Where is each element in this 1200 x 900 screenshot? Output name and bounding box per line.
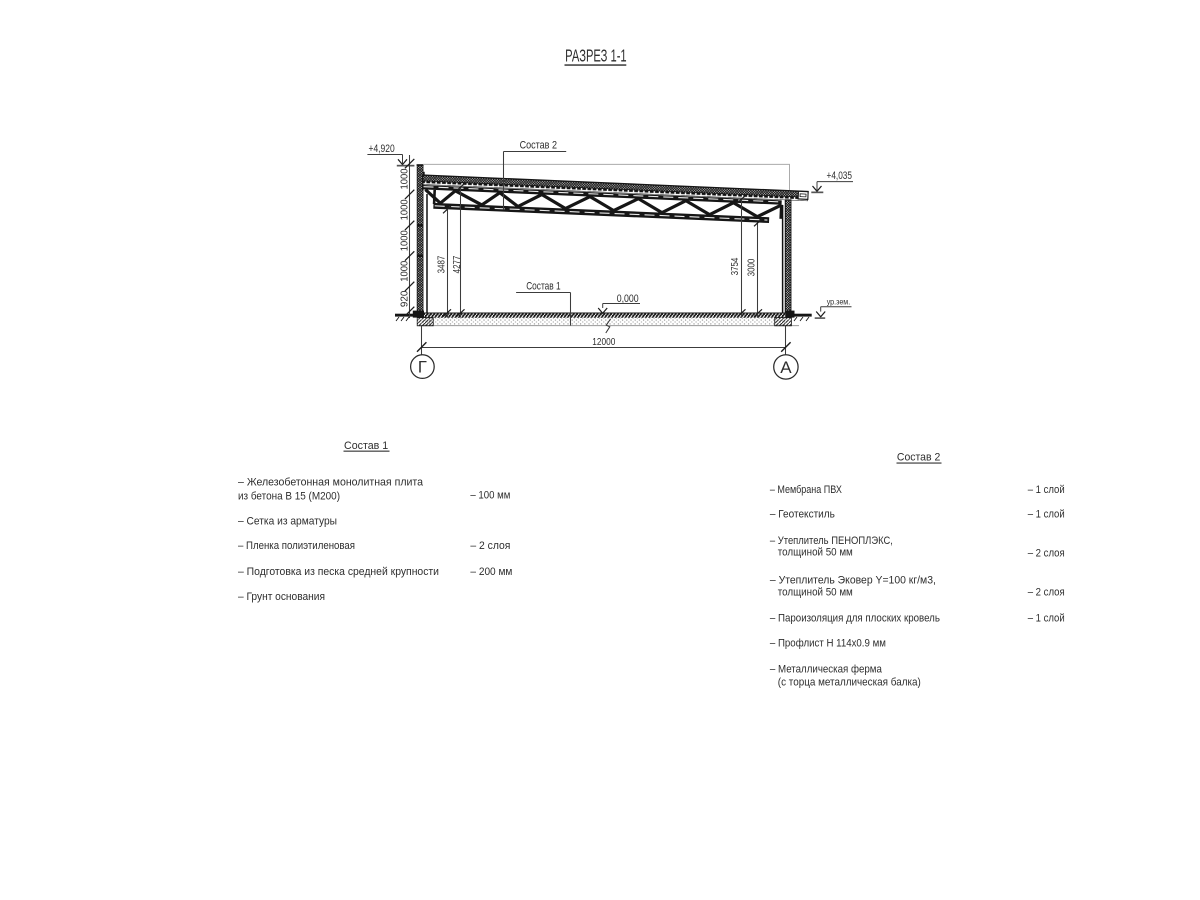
svg-text:+4,035: +4,035 [827, 170, 853, 182]
svg-text:– Железобетонная монолитная: – Железобетонная монолитная плита [238, 477, 424, 489]
svg-text:толщиной 50 мм: толщиной 50 мм [778, 586, 853, 598]
svg-text:– 200 мм: – 200 мм [470, 566, 512, 578]
svg-text:– Профлист Н 114х0.9 мм: – Профлист Н 114х0.9 мм [770, 637, 886, 649]
svg-text:толщиной 50 мм: толщиной 50 мм [778, 547, 853, 559]
svg-text:3487: 3487 [435, 256, 447, 274]
svg-text:1000: 1000 [398, 230, 410, 251]
svg-text:1000: 1000 [398, 261, 410, 282]
svg-text:– 2 слоя: – 2 слоя [1028, 586, 1065, 598]
svg-text:12000: 12000 [592, 336, 615, 348]
svg-text:– 100 мм: – 100 мм [470, 490, 510, 502]
svg-text:920: 920 [398, 291, 410, 308]
svg-text:3000: 3000 [746, 259, 758, 277]
svg-text:+4,920: +4,920 [369, 143, 395, 155]
svg-text:3754: 3754 [729, 258, 741, 276]
svg-text:А: А [780, 358, 792, 377]
svg-text:– 2 слоя: – 2 слоя [470, 540, 510, 552]
svg-text:– Геотекстиль: – Геотекстиль [770, 509, 835, 521]
svg-text:– Сетка из арматуры: – Сетка из арматуры [238, 515, 337, 527]
svg-text:1000: 1000 [398, 168, 410, 189]
svg-text:– 1 слой: – 1 слой [1028, 613, 1065, 625]
svg-text:– Мембрана ПВХ: – Мембрана ПВХ [770, 484, 842, 496]
svg-text:– Грунт основания: – Грунт основания [238, 591, 325, 603]
svg-text:– Металлическая ферма: – Металлическая ферма [770, 664, 883, 676]
svg-text:– Утеплитель Эковер Y=100 кг/: – Утеплитель Эковер Y=100 кг/м3, [770, 574, 936, 586]
svg-text:– Утеплитель ПЕНОПЛЭКС,: – Утеплитель ПЕНОПЛЭКС, [770, 535, 893, 547]
svg-text:4277: 4277 [451, 256, 463, 274]
svg-text:Состав 2: Состав 2 [520, 140, 557, 152]
svg-text:из бетона В 15 (М200): из бетона В 15 (М200) [238, 490, 340, 502]
svg-text:– 2 слоя: – 2 слоя [1028, 548, 1065, 560]
svg-text:– 1 слой: – 1 слой [1028, 484, 1065, 496]
svg-text:РАЗРЕЗ 1-1: РАЗРЕЗ 1-1 [565, 46, 627, 66]
svg-text:– Пароизоляция для плоских кр: – Пароизоляция для плоских кровель [770, 613, 940, 625]
svg-text:– Пленка полиэтиленовая: – Пленка полиэтиленовая [238, 540, 355, 552]
svg-text:– 1 слой: – 1 слой [1028, 509, 1065, 521]
svg-text:– Подготовка из песка средней: – Подготовка из песка средней крупности [238, 566, 439, 578]
svg-text:Г: Г [418, 359, 427, 377]
svg-text:1000: 1000 [398, 199, 410, 220]
svg-text:(с торца металлическая балка): (с торца металлическая балка) [778, 676, 921, 688]
svg-text:Состав 1: Состав 1 [526, 280, 560, 292]
svg-text:ур.зем.: ур.зем. [827, 296, 851, 306]
svg-text:Состав 2: Состав 2 [897, 452, 940, 464]
svg-text:Состав 1: Состав 1 [344, 440, 388, 452]
